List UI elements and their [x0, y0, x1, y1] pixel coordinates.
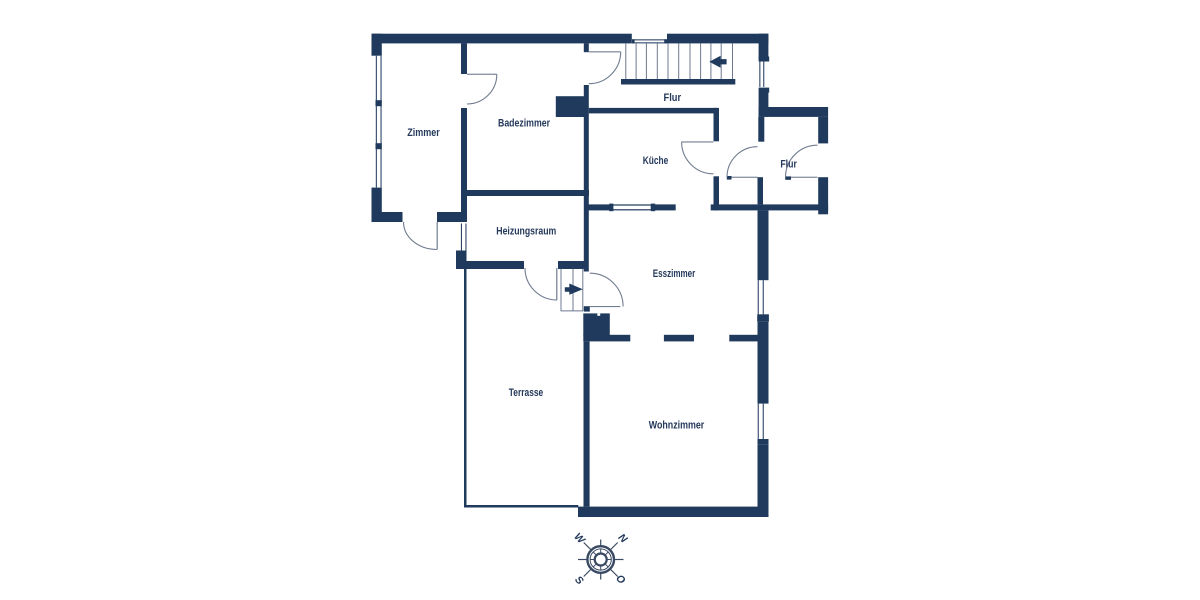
svg-text:Zimmer: Zimmer: [407, 127, 440, 139]
svg-text:Flur: Flur: [780, 158, 797, 170]
svg-text:Terrasse: Terrasse: [509, 387, 544, 399]
svg-text:Badezimmer: Badezimmer: [498, 117, 551, 129]
svg-text:Wohnzimmer: Wohnzimmer: [649, 419, 705, 431]
svg-text:Esszimmer: Esszimmer: [653, 268, 696, 280]
svg-text:Küche: Küche: [643, 155, 669, 167]
svg-text:Heizungsraum: Heizungsraum: [496, 226, 556, 238]
svg-text:Flur: Flur: [664, 92, 682, 104]
